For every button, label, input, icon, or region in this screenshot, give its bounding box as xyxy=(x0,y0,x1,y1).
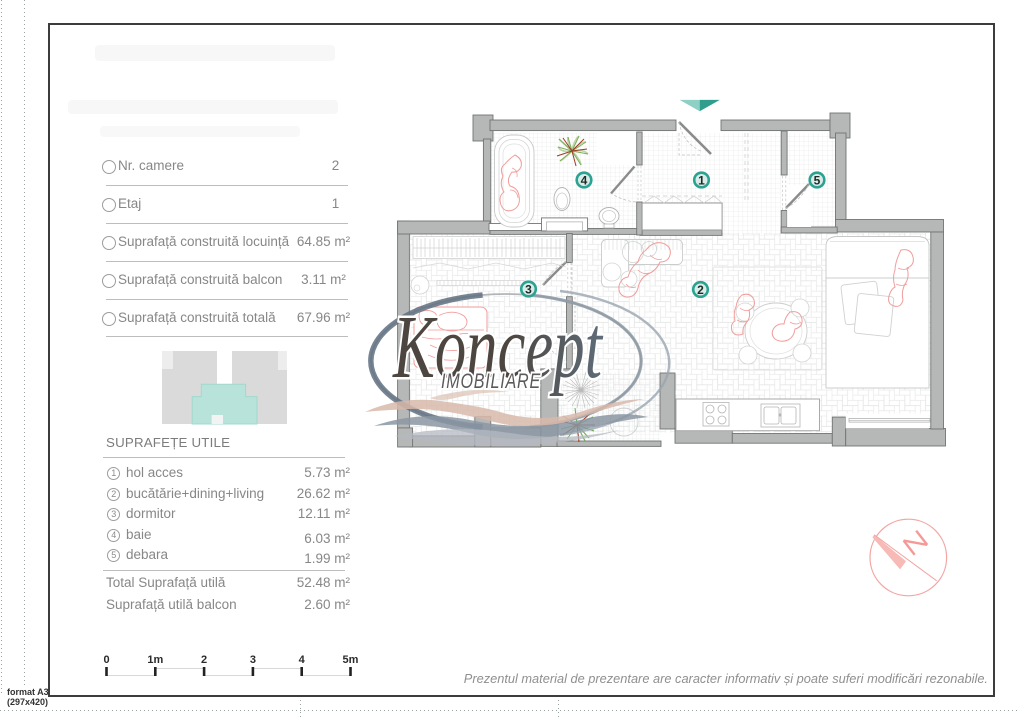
svg-text:4: 4 xyxy=(299,654,306,666)
svg-text:1m: 1m xyxy=(147,654,163,666)
svg-text:3: 3 xyxy=(250,654,256,666)
svg-text:2: 2 xyxy=(697,283,704,297)
svg-text:IMOBILIARE: IMOBILIARE xyxy=(441,370,541,393)
svg-text:5: 5 xyxy=(814,174,821,188)
svg-text:1: 1 xyxy=(698,174,705,188)
svg-text:0: 0 xyxy=(103,654,109,666)
svg-text:4: 4 xyxy=(581,174,588,188)
svg-text:3: 3 xyxy=(525,283,532,297)
svg-text:2: 2 xyxy=(201,654,207,666)
svg-text:5m: 5m xyxy=(343,654,359,666)
